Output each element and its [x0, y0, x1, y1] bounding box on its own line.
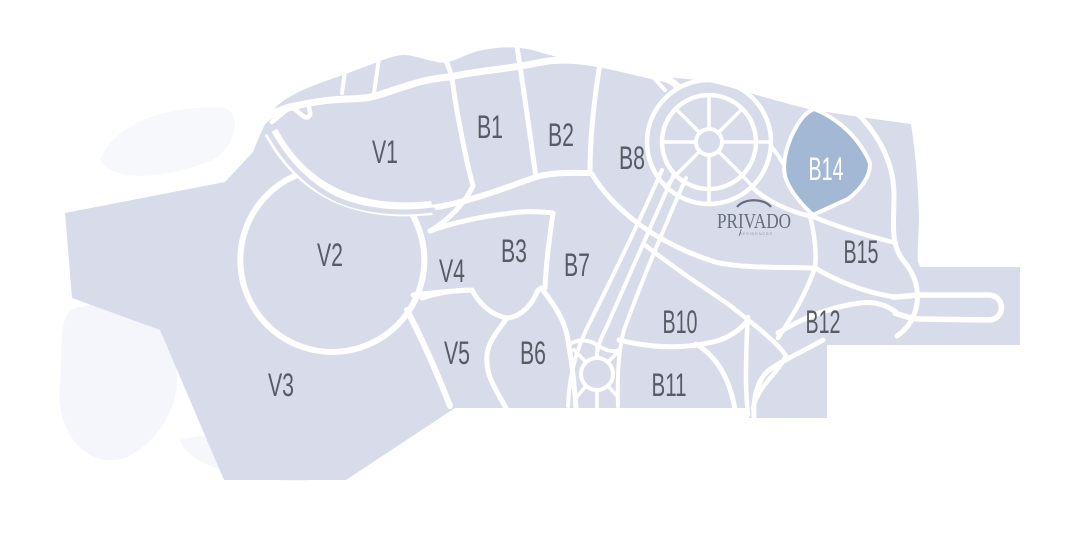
svg-text:V2: V2 — [317, 237, 343, 273]
svg-text:B12: B12 — [806, 304, 841, 340]
svg-text:B15: B15 — [844, 234, 879, 270]
svg-text:B3: B3 — [501, 233, 527, 269]
svg-text:V1: V1 — [372, 134, 398, 170]
svg-text:B7: B7 — [564, 247, 590, 283]
svg-text:B14: B14 — [809, 151, 844, 187]
svg-text:V3: V3 — [268, 367, 294, 403]
svg-text:B6: B6 — [520, 335, 546, 371]
svg-text:B2: B2 — [548, 117, 574, 153]
svg-text:B8: B8 — [619, 140, 645, 176]
svg-text:B1: B1 — [477, 109, 503, 145]
svg-text:V5: V5 — [444, 335, 470, 371]
svg-text:RESIDENCES: RESIDENCES — [739, 231, 773, 236]
svg-text:V4: V4 — [439, 253, 465, 289]
svg-text:B10: B10 — [663, 304, 698, 340]
svg-text:PRIVADO: PRIVADO — [717, 209, 791, 233]
svg-text:B11: B11 — [652, 367, 687, 403]
